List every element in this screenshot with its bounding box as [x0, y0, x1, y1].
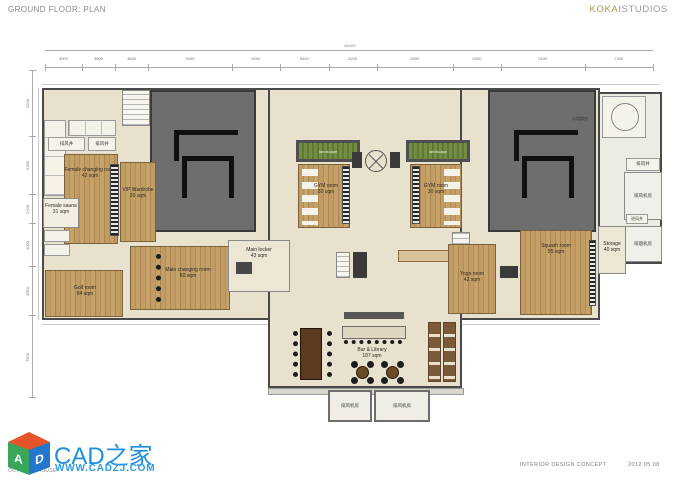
fan-room-bottom-right-label: 排风机房: [393, 404, 411, 409]
cafe-table: [386, 366, 399, 379]
dim-value: 8300: [377, 56, 453, 61]
dim-value: 3600: [115, 56, 148, 61]
dim-value: 9100: [501, 56, 585, 61]
dim-seg: 7400: [585, 56, 653, 67]
cube-letter-a: A: [14, 450, 23, 467]
core-wall: [522, 156, 574, 198]
revolving-door-icon: [365, 150, 387, 172]
gym-lockers: [342, 166, 350, 224]
studio-logo: KOKAISTUDIOS: [590, 4, 668, 15]
massage-bed: [44, 244, 70, 256]
entrance-wall-left: [352, 152, 362, 168]
landscape-strip-right: landscape: [406, 140, 470, 162]
dim-seg: 9100: [501, 56, 585, 67]
fan-room-top: 排风机房: [624, 172, 662, 220]
dim-seg: 6200: [22, 70, 32, 137]
exhaust-shaft-2-label: 排风井: [95, 142, 109, 147]
table-chairs-right: [327, 331, 332, 377]
stair-top-left: [122, 90, 150, 126]
dimension-col-left: 6200 5300 2700 4000 4550 7500: [22, 70, 33, 398]
massage-beds: [302, 169, 318, 225]
room-yoga: [448, 244, 496, 314]
shaft-right-mid-label: 进风井: [631, 217, 643, 221]
dimension-row-top: 4000 3600 3600 9100 5200 5300 5200 8300 …: [45, 56, 653, 68]
dim-seg: 5300: [280, 56, 329, 67]
dim-seg: 5200: [232, 56, 280, 67]
site-line-top: [42, 84, 660, 85]
site-line-bottom-left: [42, 324, 270, 325]
room-golf: [45, 270, 123, 317]
shaft-right-top-label: 排风井: [636, 162, 650, 167]
dim-seg: 7500: [22, 316, 32, 397]
studio-logo-primary: KOKAI: [590, 4, 622, 15]
concept-label: INTERIOR DESIGN CONCEPT: [520, 462, 607, 468]
dim-seg: 9100: [148, 56, 232, 67]
massage-beds: [444, 169, 460, 225]
entrance-wall-right: [390, 152, 400, 168]
room-squash: [520, 230, 592, 315]
dim-value: 3600: [82, 56, 115, 61]
dim-seg: 3600: [82, 56, 115, 67]
core-wall: [514, 135, 519, 161]
shower-stalls: [44, 120, 66, 196]
squash-lockers: [589, 240, 596, 306]
room-vip-wardrobe: [120, 162, 156, 242]
bar-back-shelf: [344, 312, 404, 319]
wc-stalls: [68, 120, 116, 136]
studio-logo-secondary: STUDIOS: [622, 4, 668, 15]
locker-bench: [236, 262, 252, 274]
dim-seg: 2700: [22, 195, 32, 224]
core-wall: [514, 130, 578, 135]
smoke-fan-room-label: 排烟机房: [634, 242, 652, 247]
dim-value: 4000: [25, 241, 30, 250]
fireplace: [353, 252, 367, 278]
smoke-fan-room: 排烟机房: [624, 226, 662, 262]
dim-seg: 4550: [22, 267, 32, 316]
exhaust-shaft-box-1: 排风井: [48, 137, 85, 151]
dim-seg: 4000: [22, 224, 32, 267]
bar-counter: [342, 326, 406, 339]
core-wall: [174, 135, 179, 161]
tower-core-left: [150, 90, 256, 232]
core-wall: [174, 130, 238, 135]
dim-value: 5200: [453, 56, 501, 61]
room-male-changing: [130, 246, 230, 310]
landscape-left-label: landscape: [319, 149, 337, 154]
room-storage: [598, 226, 626, 274]
equipment-block: [500, 266, 518, 278]
core-wall: [182, 156, 234, 198]
cadzj-logo-icon: A D: [6, 432, 52, 478]
dim-seg: 5200: [329, 56, 377, 67]
site-line-bottom-right: [460, 324, 600, 325]
shaft-right-top: 排风井: [626, 158, 660, 171]
exhaust-shaft-box-2: 排风井: [88, 137, 116, 151]
wardrobe-lockers: [110, 164, 119, 236]
dim-seg: 5200: [453, 56, 501, 67]
tower-note-label: 公用部分: [572, 116, 588, 122]
shaft-right-mid: 进风井: [626, 214, 648, 224]
tower-core-right: 公用部分: [488, 90, 596, 232]
stair-annex: [602, 96, 646, 138]
dim-seg: 3600: [115, 56, 148, 67]
dim-seg: 5300: [22, 137, 32, 194]
gym-lockers: [412, 166, 420, 224]
watermark-url: WWW.CADZJ.COM: [55, 463, 155, 474]
library-table: [300, 328, 322, 380]
bar-stools: [344, 340, 402, 344]
fan-room-bottom-left: 排风机房: [328, 390, 372, 422]
cube-letter-d: D: [35, 450, 44, 467]
dim-value: 7400: [585, 56, 653, 61]
lounge-chairs: [443, 322, 456, 382]
fan-room-bottom-left-label: 排风机房: [341, 404, 359, 409]
exhaust-shaft-1-label: 排风井: [60, 142, 74, 147]
dim-value: 4550: [25, 287, 30, 296]
dim-value: 6200: [25, 99, 30, 108]
spiral-stair-icon: [611, 103, 639, 131]
date-label: 2012 05 08: [628, 462, 660, 468]
dimension-total-top: 64100: [330, 43, 370, 48]
dim-seg: 8300: [377, 56, 453, 67]
fan-room-bottom-right: 排风机房: [374, 390, 430, 422]
stair-center: [336, 252, 350, 278]
dim-value: 5300: [280, 56, 329, 61]
dim-value: 2700: [25, 205, 30, 214]
dim-value: 7500: [25, 353, 30, 362]
massage-bed: [44, 230, 70, 242]
dimension-total-line: [45, 50, 653, 51]
dim-value: 9100: [148, 56, 232, 61]
page-title: GROUND FLOOR: PLAN: [8, 5, 106, 14]
fan-room-top-label: 排风机房: [634, 194, 652, 199]
landscape-right-label: landscape: [429, 149, 447, 154]
site-line-left: [38, 88, 39, 320]
table-chairs-left: [293, 331, 298, 377]
room-female-sauna: [43, 198, 79, 228]
locker-row: [156, 254, 161, 302]
dim-seg: 4000: [45, 56, 82, 67]
landscape-strip-left: landscape: [296, 140, 360, 162]
dim-value: 5300: [25, 161, 30, 170]
dim-value: 5200: [232, 56, 280, 61]
cafe-table: [356, 366, 369, 379]
dim-value: 4000: [45, 56, 82, 61]
lounge-chairs: [428, 322, 441, 382]
dim-value: 5200: [329, 56, 377, 61]
